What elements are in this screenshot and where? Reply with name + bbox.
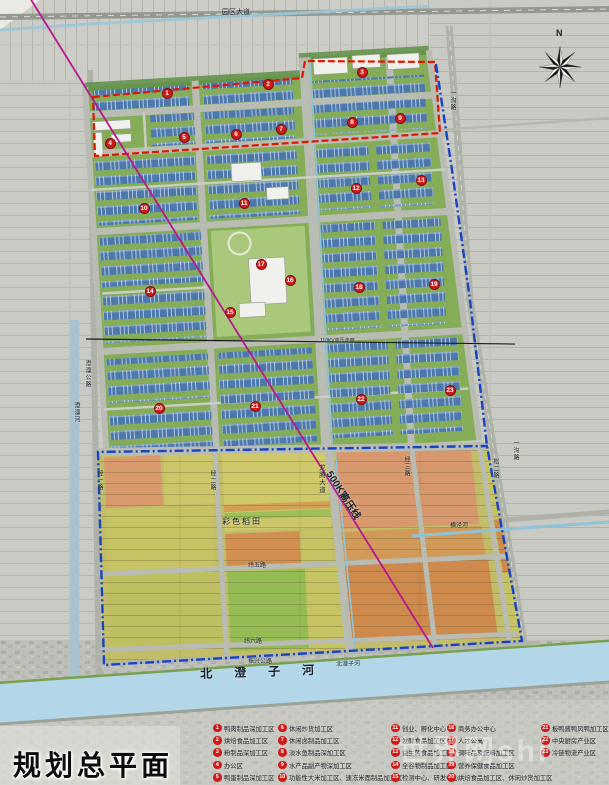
- legend-number-badge: 8: [278, 748, 287, 757]
- planning-master-plan: 园区大道一沟路一沟路澄潼公路澄潼河经一路经二路龙腾大道经三路松二路500KV高压…: [0, 0, 609, 785]
- legend-number-badge: 7: [278, 736, 287, 745]
- legend-item: 23冷链物流产业区: [541, 747, 609, 759]
- legend-column: 1鸭肉制品深加工区2烘焙食品加工区3粉制品深加工区4办公区5鸭蛋制品深加工区: [213, 722, 274, 783]
- legend: 1鸭肉制品深加工区2烘焙食品加工区3粉制品深加工区4办公区5鸭蛋制品深加工区6休…: [0, 0, 609, 785]
- legend-item-label: 休闲卤制品加工区: [289, 736, 339, 745]
- legend-item: 20烘焙食品加工区、休闲炒货加工区: [447, 771, 552, 783]
- legend-item-label: 休闲炒货加工区: [289, 724, 333, 733]
- legend-item-label: 冷链物流产业区: [552, 748, 596, 757]
- legend-item-label: 烘焙食品加工区: [224, 736, 268, 745]
- legend-number-badge: 2: [213, 736, 222, 745]
- legend-item-label: 淡水鱼制品深加工区: [289, 748, 346, 757]
- legend-item-label: 办公区: [224, 761, 243, 770]
- legend-item-label: 功能性大米加工区、速冻米面制品加工区: [289, 773, 402, 782]
- legend-item-label: 板鸭酱鸭风鸭加工区: [552, 724, 609, 733]
- legend-item-label: 烘焙食品加工区、休闲炒货加工区: [458, 773, 552, 782]
- legend-number-badge: 15: [391, 773, 400, 782]
- legend-item: 10功能性大米加工区、速冻米面制品加工区: [278, 771, 402, 783]
- legend-number-badge: 1: [213, 724, 222, 733]
- watermark: 世界网shi: [398, 726, 549, 770]
- legend-item: 1鸭肉制品深加工区: [213, 722, 274, 734]
- legend-item: 9水产品副产物深加工区: [278, 759, 402, 771]
- legend-number-badge: 4: [213, 761, 222, 770]
- legend-column: 21板鸭酱鸭风鸭加工区22中央厨房产业区23冷链物流产业区: [541, 722, 609, 759]
- legend-item-label: 鸭肉制品深加工区: [224, 724, 274, 733]
- legend-item: 4办公区: [213, 759, 274, 771]
- legend-item: 5鸭蛋制品深加工区: [213, 771, 274, 783]
- legend-number-badge: 9: [278, 761, 287, 770]
- legend-item: 21板鸭酱鸭风鸭加工区: [541, 722, 609, 734]
- legend-number-badge: 3: [213, 748, 222, 757]
- legend-column: 6休闲炒货加工区7休闲卤制品加工区8淡水鱼制品深加工区9水产品副产物深加工区10…: [278, 722, 402, 783]
- legend-item: 8淡水鱼制品深加工区: [278, 747, 402, 759]
- legend-item-label: 水产品副产物深加工区: [289, 761, 352, 770]
- legend-item: 2烘焙食品加工区: [213, 734, 274, 746]
- legend-item: 22中央厨房产业区: [541, 734, 609, 746]
- legend-number-badge: 10: [278, 773, 287, 782]
- legend-item-label: 中央厨房产业区: [552, 736, 596, 745]
- legend-item-label: 粉制品深加工区: [224, 748, 268, 757]
- legend-item: 6休闲炒货加工区: [278, 722, 402, 734]
- legend-item: 3粉制品深加工区: [213, 747, 274, 759]
- legend-number-badge: 20: [447, 773, 456, 782]
- legend-item: 7休闲卤制品加工区: [278, 734, 402, 746]
- legend-item-label: 鸭蛋制品深加工区: [224, 773, 274, 782]
- legend-number-badge: 5: [213, 773, 222, 782]
- legend-number-badge: 6: [278, 724, 287, 733]
